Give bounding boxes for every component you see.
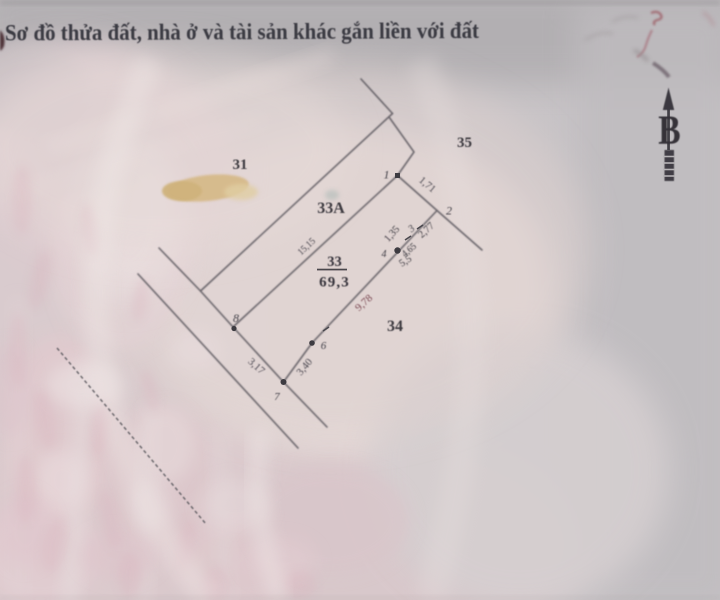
svg-text:1: 1 <box>384 168 390 182</box>
svg-text:2: 2 <box>446 204 452 218</box>
svg-text:31: 31 <box>233 157 248 173</box>
svg-text:35: 35 <box>457 135 472 151</box>
svg-text:34: 34 <box>387 318 403 335</box>
svg-text:33: 33 <box>327 254 342 270</box>
svg-text:7: 7 <box>274 391 280 403</box>
svg-text:6: 6 <box>321 340 327 352</box>
svg-text:Sơ đồ thửa đất, nhà ở và tài s: Sơ đồ thửa đất, nhà ở và tài sản khác gắ… <box>5 18 479 46</box>
svg-text:8: 8 <box>233 311 239 325</box>
svg-text:4: 4 <box>382 249 387 260</box>
svg-text:33A: 33A <box>317 200 345 217</box>
svg-text:69,3: 69,3 <box>319 275 350 291</box>
svg-text:B: B <box>658 109 680 154</box>
